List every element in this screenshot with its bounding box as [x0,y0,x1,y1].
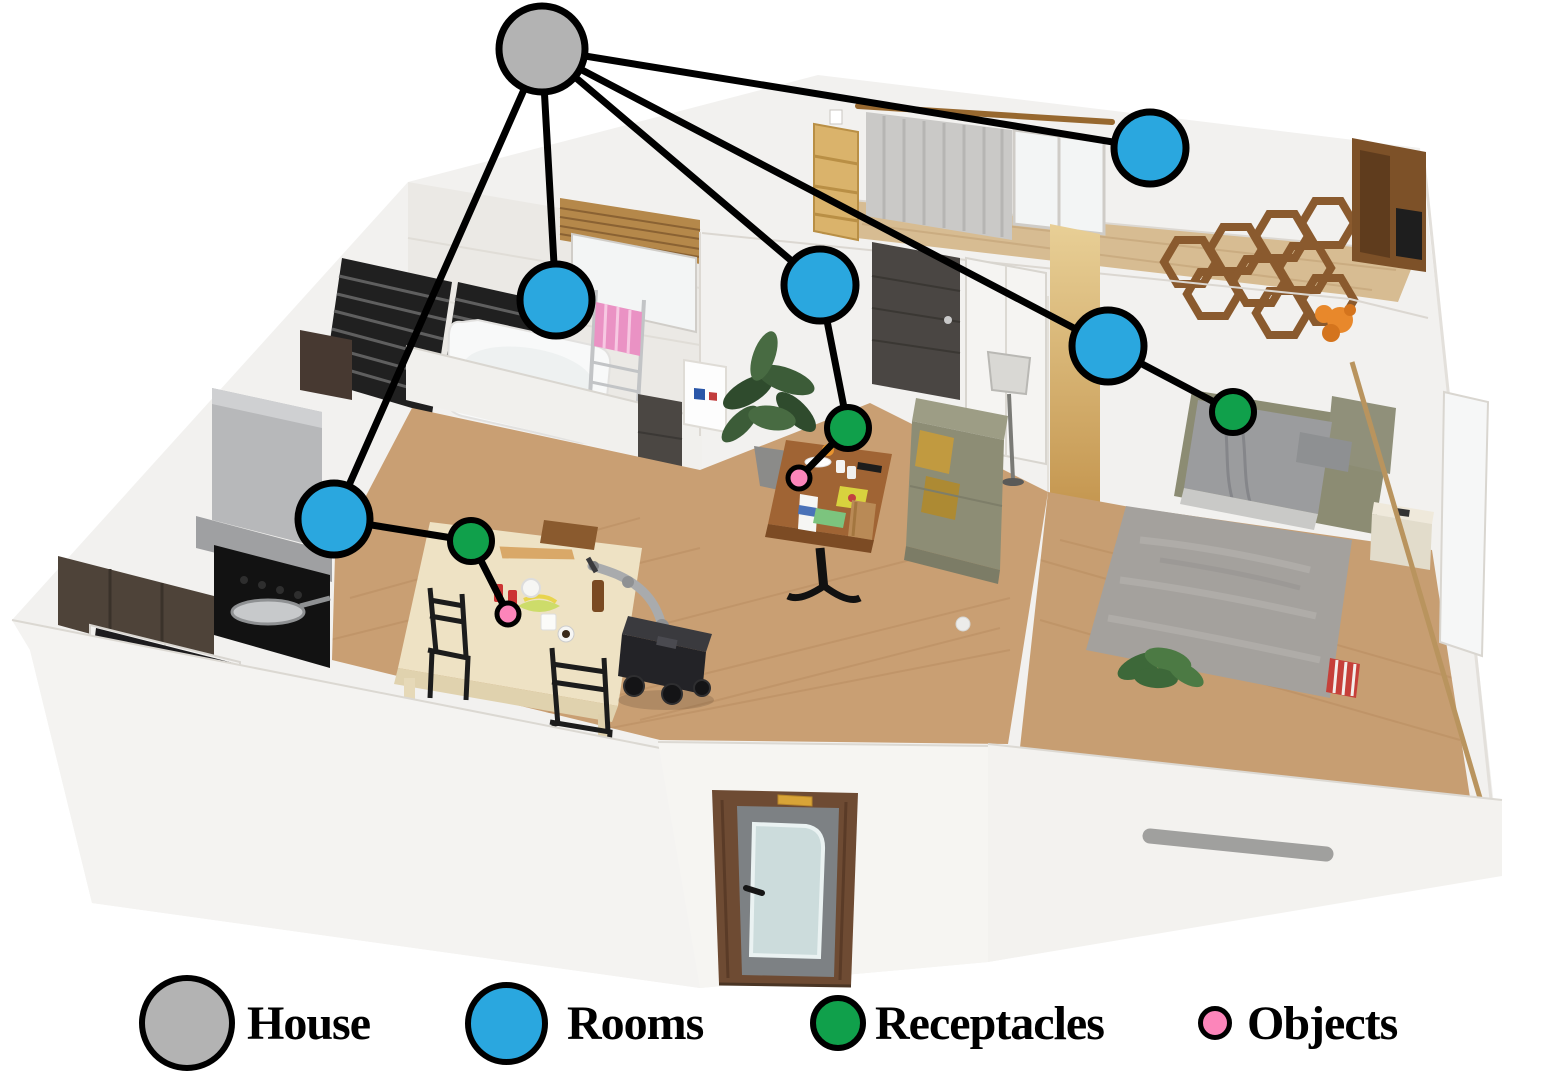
node-object-living [788,467,810,489]
node-room-bathroom [520,264,592,336]
node-room-upper-bedroom [1114,112,1186,184]
node-room-kitchen [298,483,370,555]
node-receptacle-living-coffee-table [827,407,869,449]
wall-poster [684,360,726,432]
node-room-bedroom [1072,310,1144,382]
bedroom-window [1440,392,1488,656]
house-3d-render [0,0,1561,1076]
ball [956,617,970,631]
node-receptacle-bedroom-bed [1212,391,1254,433]
node-receptacle-kitchen-table [450,520,492,562]
bathroom-shelf [300,330,352,400]
front-door [712,790,858,986]
node-room-living [784,249,856,321]
node-object-kitchen [497,603,519,625]
door-plaque [778,795,812,806]
node-house [499,6,585,92]
sofa [904,398,1008,584]
striped-box [1326,658,1360,698]
wardrobe [1352,138,1426,272]
center-door [872,242,960,400]
